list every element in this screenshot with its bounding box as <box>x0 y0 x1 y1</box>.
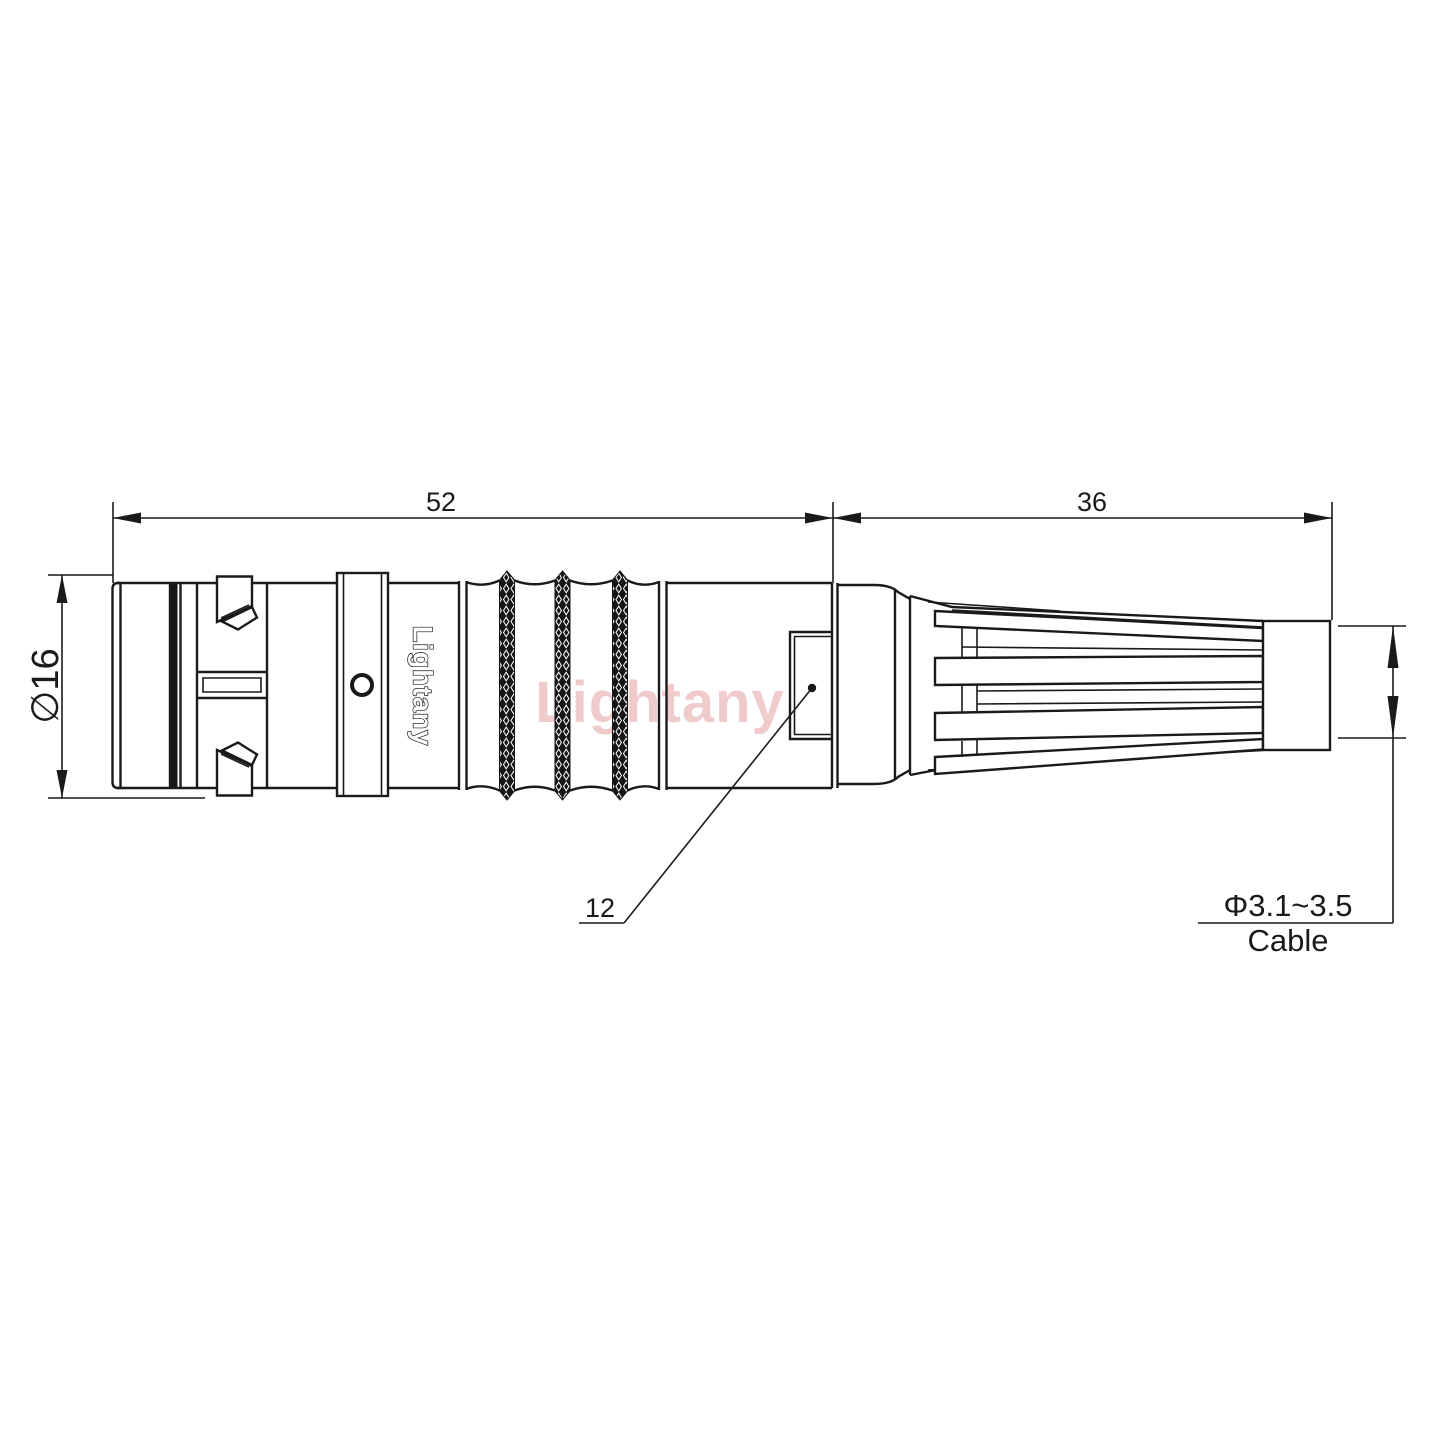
strain-relief-boot <box>910 596 1263 775</box>
brand-text-on-body: Lightany <box>408 626 438 747</box>
latch-slot <box>197 672 267 698</box>
dim-52-label: 52 <box>426 487 456 517</box>
cable-label: Cable <box>1248 923 1329 958</box>
knurl-band <box>500 571 515 800</box>
cable-diameter-label: Φ3.1~3.5 <box>1223 888 1352 923</box>
back-shell <box>838 585 911 784</box>
latch-tab-top <box>217 577 257 630</box>
dim-36: 36 <box>833 487 1332 620</box>
dim-diameter-16: ∅16 <box>25 575 205 798</box>
knurl-band <box>613 571 628 800</box>
cable-end-block <box>1263 621 1330 750</box>
knurl-band <box>555 571 570 800</box>
dim-52: 52 <box>113 487 833 583</box>
coupling-collar <box>337 573 388 796</box>
technical-drawing: Lightany <box>0 0 1440 1440</box>
dim-36-label: 36 <box>1077 487 1107 517</box>
body-window <box>790 632 833 739</box>
latch-tab-bottom <box>217 743 257 796</box>
drawing-canvas: Lightany <box>0 0 1440 1440</box>
dim-12-label: 12 <box>585 893 615 923</box>
dim-diameter-label: ∅16 <box>25 648 67 723</box>
